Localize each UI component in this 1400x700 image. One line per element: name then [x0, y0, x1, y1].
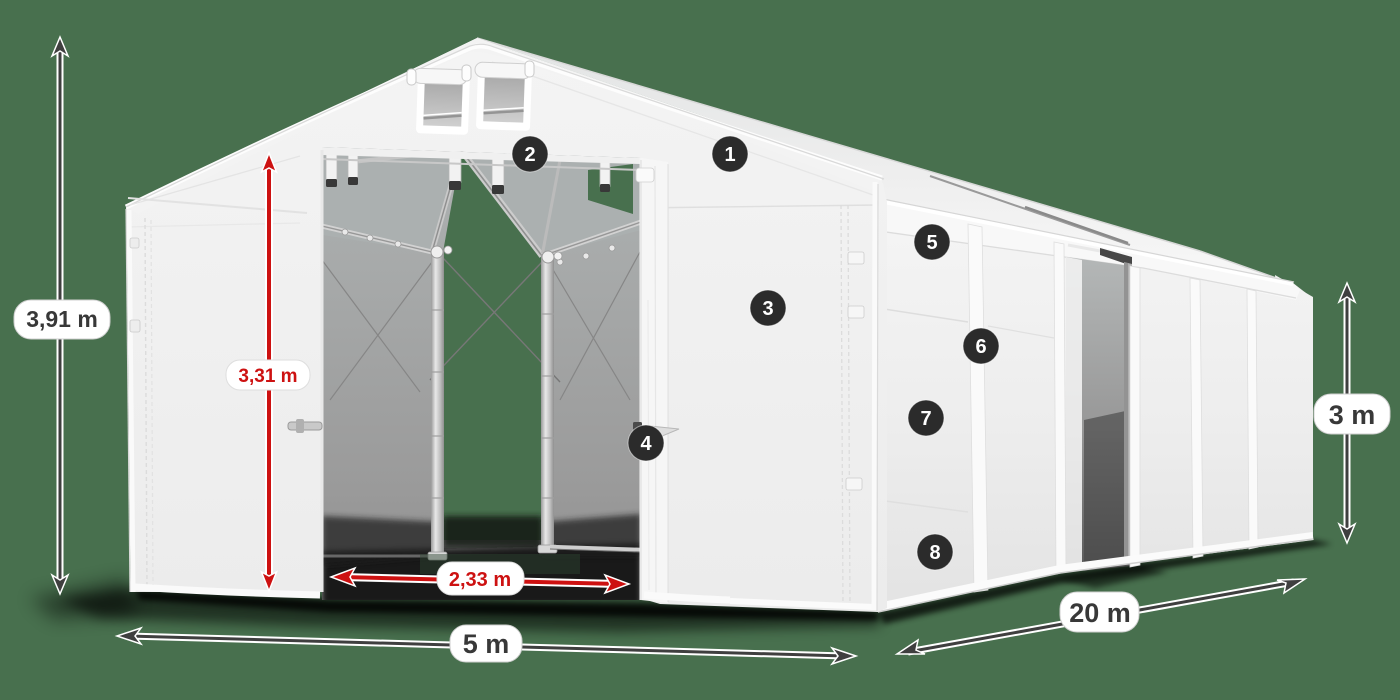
svg-text:5: 5: [926, 232, 937, 254]
svg-text:7: 7: [920, 408, 931, 430]
svg-text:6: 6: [975, 336, 986, 358]
svg-text:3: 3: [762, 298, 773, 320]
svg-text:4: 4: [640, 433, 652, 455]
svg-text:3,91 m: 3,91 m: [26, 306, 98, 332]
svg-text:20 m: 20 m: [1069, 598, 1131, 628]
svg-text:1: 1: [724, 144, 735, 166]
svg-text:2,33 m: 2,33 m: [449, 569, 511, 591]
svg-text:3,31 m: 3,31 m: [238, 366, 297, 387]
svg-text:2: 2: [524, 144, 535, 166]
svg-text:8: 8: [929, 542, 940, 564]
svg-text:3 m: 3 m: [1329, 400, 1376, 430]
svg-text:5 m: 5 m: [463, 629, 510, 659]
